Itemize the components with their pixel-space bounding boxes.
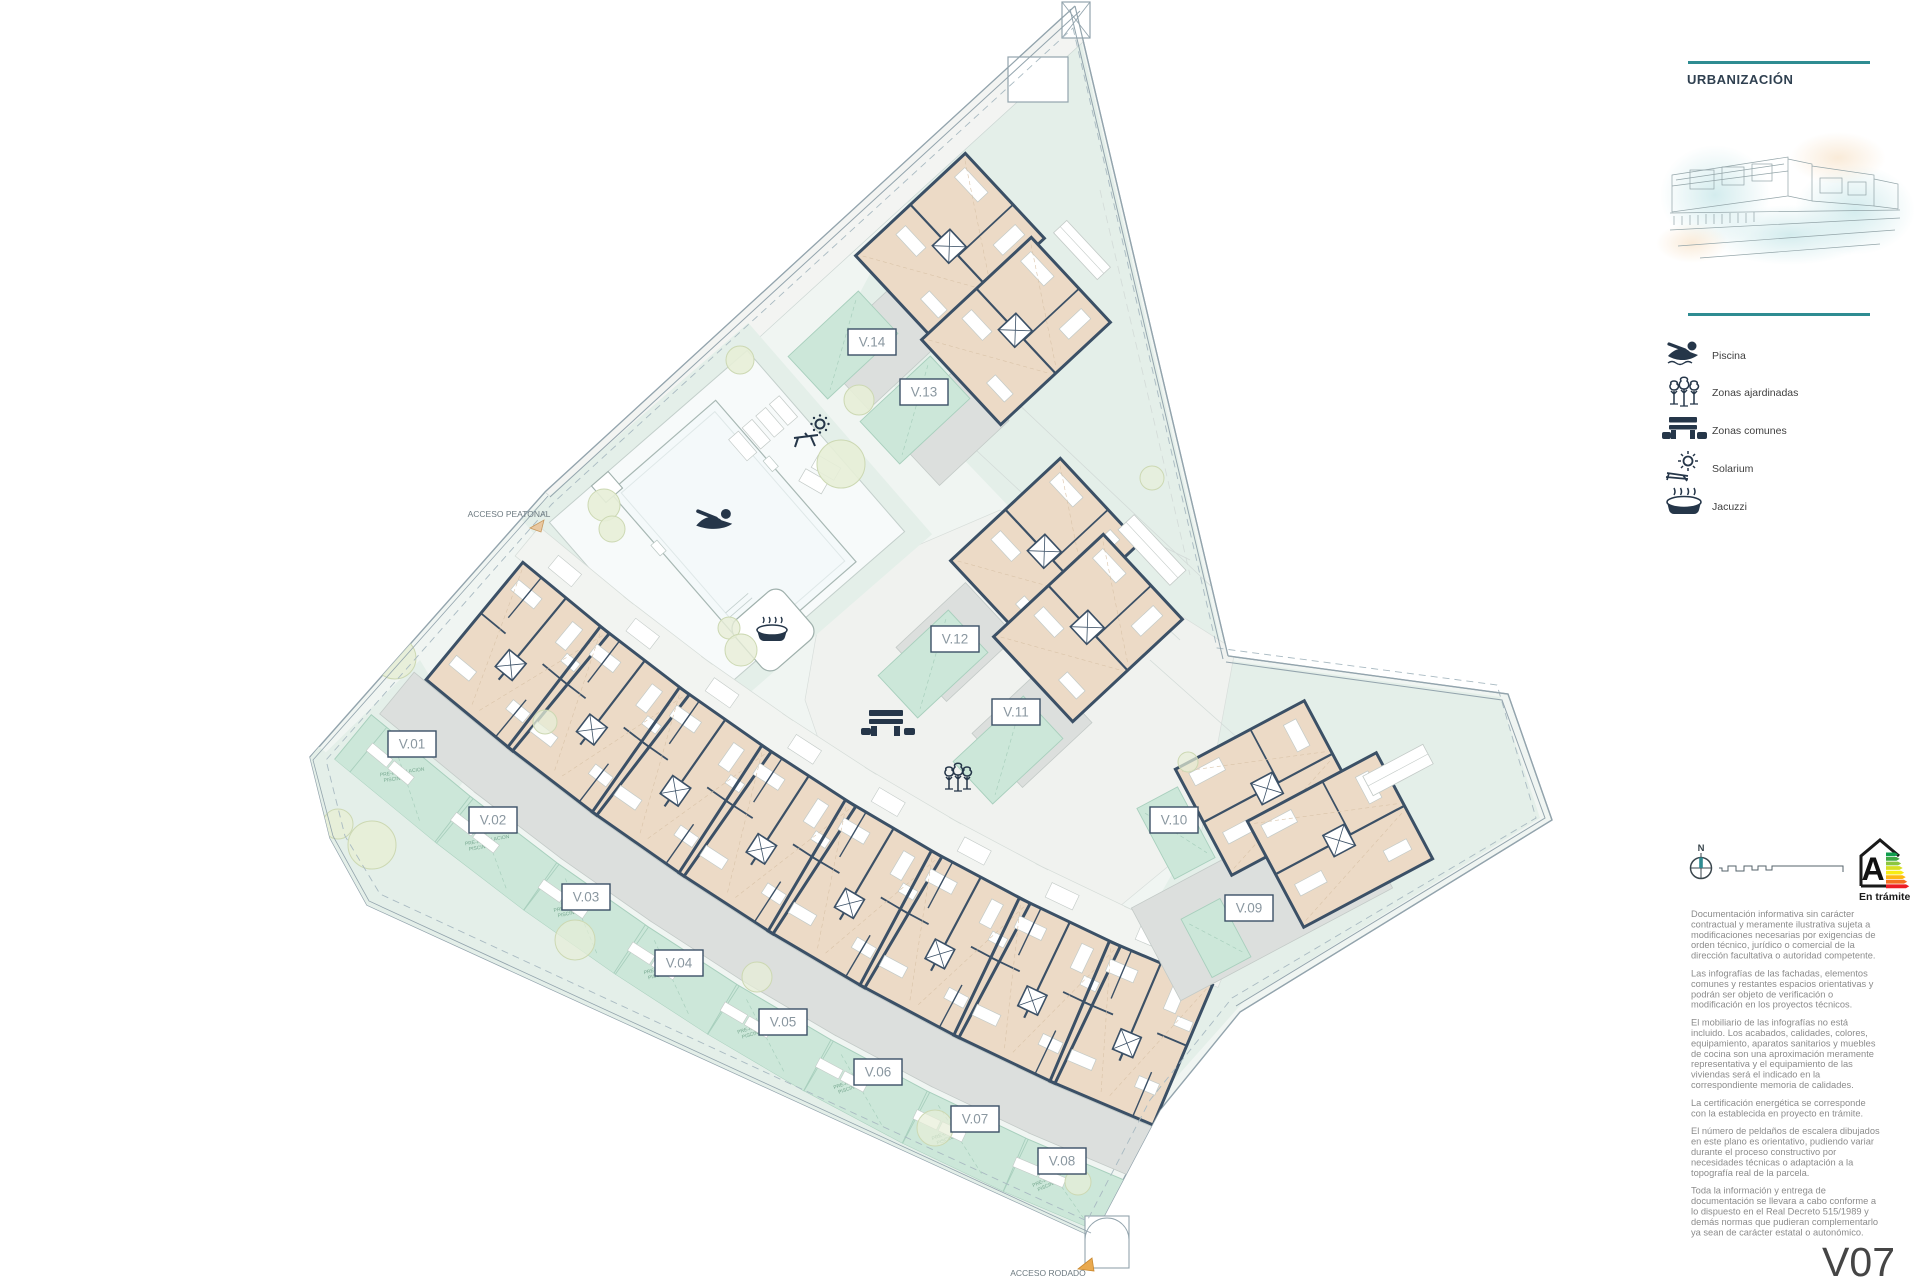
- svg-text:V.04: V.04: [666, 956, 693, 971]
- svg-text:viviendas será el indicado en: viviendas será el indicado en la: [1691, 1070, 1821, 1080]
- svg-text:Jacuzzi: Jacuzzi: [1712, 501, 1747, 513]
- svg-text:Documentación informativa sin: Documentación informativa sin carácter: [1691, 909, 1854, 919]
- svg-text:Zonas comunes: Zonas comunes: [1712, 425, 1787, 437]
- svg-text:El número de peldaños de escal: El número de peldaños de escalera dibuja…: [1691, 1126, 1880, 1136]
- svg-text:podrán ser objeto de verificac: podrán ser objeto de verificación o: [1691, 989, 1833, 999]
- svg-text:comunes y restantes espacios o: comunes y restantes espacios orientativa…: [1691, 979, 1874, 989]
- svg-text:V.13: V.13: [911, 385, 938, 400]
- svg-text:V07: V07: [1822, 1239, 1895, 1280]
- svg-text:orden técnico, jurídico o come: orden técnico, jurídico o comercial de l…: [1691, 940, 1856, 950]
- svg-text:incluido. Los acabados, calida: incluido. Los acabados, calidades, color…: [1691, 1028, 1868, 1038]
- svg-text:V.10: V.10: [1161, 813, 1188, 828]
- svg-text:En trámite: En trámite: [1859, 891, 1911, 903]
- svg-text:V.07: V.07: [962, 1112, 989, 1127]
- svg-text:modificación en los proyectos: modificación en los proyectos técnicos.: [1691, 1000, 1852, 1010]
- svg-text:contractual y meramente ilustr: contractual y meramente ilustrativa suje…: [1691, 919, 1871, 929]
- svg-text:V.12: V.12: [942, 632, 969, 647]
- svg-text:V.06: V.06: [865, 1065, 892, 1080]
- svg-text:en este plano es orientativo,: en este plano es orientativo, pudiendo v…: [1691, 1137, 1874, 1147]
- svg-text:dirección facultativa o autori: dirección facultativa o autoridad compet…: [1691, 951, 1876, 961]
- svg-text:ACCESO RODADO: ACCESO RODADO: [1010, 1268, 1086, 1278]
- svg-text:V.03: V.03: [573, 890, 600, 905]
- svg-text:modificaciones necesarias por: modificaciones necesarias por exigencias…: [1691, 930, 1876, 940]
- svg-text:demás normas que pudieran comp: demás normas que pudieran complementarlo: [1691, 1217, 1878, 1227]
- svg-text:V.08: V.08: [1049, 1154, 1076, 1169]
- svg-text:de cocina son una aproximación: de cocina son una aproximación meramente: [1691, 1049, 1874, 1059]
- svg-text:necesidades técnicas o adaptac: necesidades técnicas o adaptación a la: [1691, 1157, 1854, 1167]
- svg-text:A: A: [1861, 851, 1884, 887]
- svg-text:Zonas ajardinadas: Zonas ajardinadas: [1712, 387, 1798, 399]
- svg-text:documentación se llevara a cab: documentación se llevara a cabo conforme…: [1691, 1196, 1877, 1206]
- svg-text:equipamiento, aparatos sanitar: equipamiento, aparatos sanitarios y mueb…: [1691, 1038, 1876, 1048]
- svg-text:V.01: V.01: [399, 737, 426, 752]
- svg-text:La certificación energética se: La certificación energética se correspon…: [1691, 1098, 1866, 1108]
- svg-text:lo dispuesto en el Real Decret: lo dispuesto en el Real Decreto 515/1989…: [1691, 1207, 1869, 1217]
- svg-text:V.02: V.02: [480, 813, 507, 828]
- svg-text:V.05: V.05: [770, 1015, 797, 1030]
- svg-text:V.14: V.14: [859, 335, 886, 350]
- svg-text:Las infografías de las fachada: Las infografías de las fachadas, element…: [1691, 969, 1868, 979]
- svg-text:Toda la información y entrega: Toda la información y entrega de: [1691, 1186, 1826, 1196]
- svg-text:correspondiente memoria de cal: correspondiente memoria de calidades.: [1691, 1080, 1854, 1090]
- svg-text:con la establecida en proyecto: con la establecida en proyecto en trámit…: [1691, 1108, 1863, 1118]
- svg-text:ACCESO PEATONAL: ACCESO PEATONAL: [468, 509, 551, 519]
- svg-text:representativa y el equipamien: representativa y el equipamiento de las: [1691, 1059, 1853, 1069]
- svg-text:V.11: V.11: [1003, 705, 1029, 720]
- svg-text:El mobiliario de las infografí: El mobiliario de las infografías no está: [1691, 1018, 1849, 1028]
- svg-text:durante el proceso constructiv: durante el proceso constructivo por: [1691, 1147, 1836, 1157]
- svg-text:Solarium: Solarium: [1712, 463, 1754, 475]
- svg-text:N: N: [1698, 843, 1705, 854]
- svg-text:Piscina: Piscina: [1712, 350, 1746, 362]
- svg-text:URBANIZACIÓN: URBANIZACIÓN: [1687, 72, 1793, 87]
- svg-text:topografía real de la parcela.: topografía real de la parcela.: [1691, 1168, 1809, 1178]
- svg-text:V.09: V.09: [1236, 901, 1263, 916]
- svg-text:ya sean de carácter estatal o: ya sean de carácter estatal o autonómico…: [1691, 1227, 1864, 1237]
